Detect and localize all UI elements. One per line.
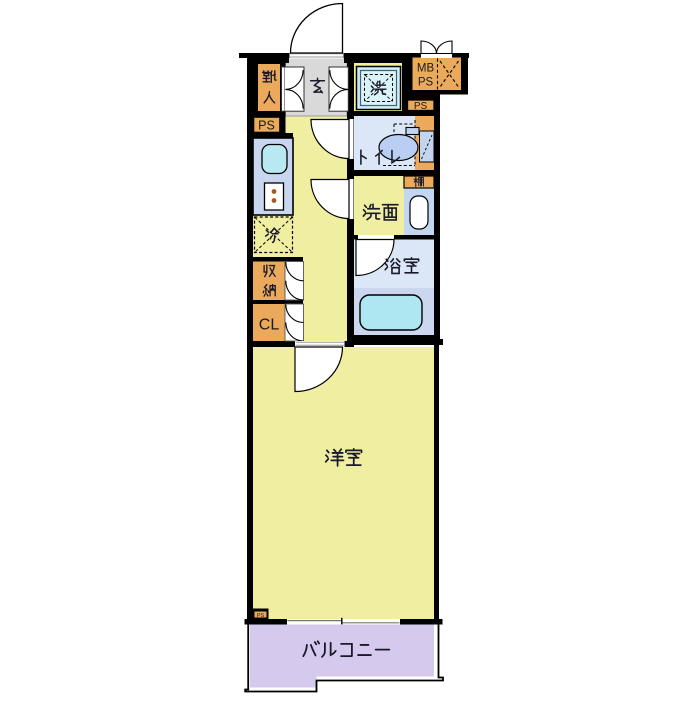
svg-text:CL: CL [259, 317, 280, 334]
svg-text:MB: MB [417, 63, 435, 75]
svg-text:PS: PS [414, 101, 428, 112]
svg-text:PS: PS [418, 77, 434, 89]
svg-text:PS: PS [258, 119, 275, 133]
svg-text:PS: PS [257, 613, 265, 619]
